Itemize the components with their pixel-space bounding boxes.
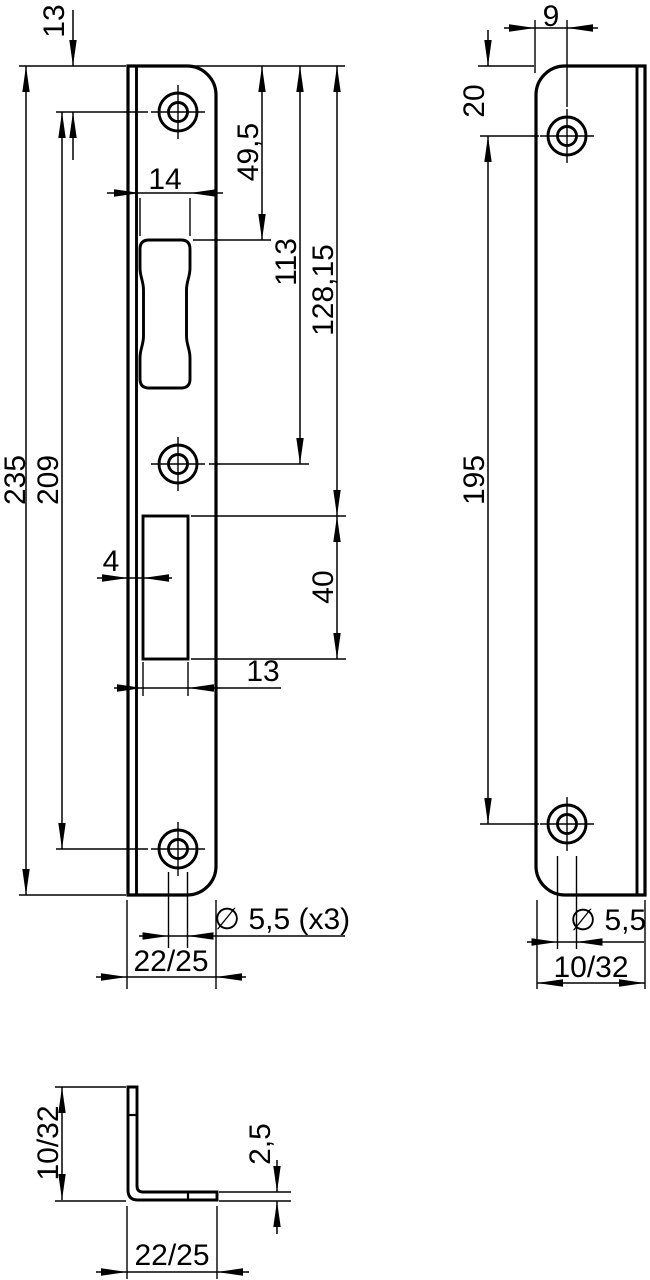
dim-side-hole-to-edge: 9 [543,0,560,33]
screw-hole-top [151,85,205,139]
deadbolt-cutout [143,516,188,659]
dim-profile-thickness: 2,5 [244,1123,277,1165]
screw-hole-side-bottom [540,797,594,851]
dim-front-hole-top-offset: 13 [38,4,71,37]
profile-view [128,1087,217,1200]
latch-cutout [140,240,190,388]
angle-profile-outline [128,1087,217,1200]
dim-front-top-to-bolt-cutout: 128,15 [307,244,340,336]
dim-front-plate-width: 22/25 [133,945,208,978]
front-extension-lines [19,66,346,989]
dim-side-top-to-hole: 20 [458,84,491,117]
dim-front-latch-width: 14 [148,163,181,196]
screw-hole-middle [151,437,205,491]
dim-front-bolt-offset: 4 [103,545,120,578]
side-plate-outline [536,66,645,895]
dim-profile-leg-height: 10/32 [32,1105,65,1180]
dim-side-hole-spacing: 195 [458,455,491,505]
dim-side-leg-width: 10/32 [553,951,628,984]
dim-front-bolt-cutout-height: 40 [307,570,340,603]
dim-front-bolt-width: 13 [246,655,279,688]
side-view [536,66,645,895]
screw-hole-side-top [540,109,594,163]
strike-plate-drawing: 13 235 209 49,5 113 128,15 40 14 4 13 ∅ … [0,0,650,1280]
dim-front-top-to-latch: 49,5 [232,123,265,181]
dim-front-total-height: 235 [0,455,32,505]
dim-side-hole-diameter: ∅ 5,5 [570,904,646,937]
dim-profile-flange-width: 22/25 [134,1239,209,1272]
dim-front-hole-diameter: ∅ 5,5 (x3) [214,903,350,936]
screw-hole-bottom [151,822,205,876]
dim-front-hole-spacing: 209 [32,455,65,505]
technical-drawing-sheet: 13 235 209 49,5 113 128,15 40 14 4 13 ∅ … [0,0,650,1280]
dim-front-top-to-middle-hole: 113 [270,238,303,286]
